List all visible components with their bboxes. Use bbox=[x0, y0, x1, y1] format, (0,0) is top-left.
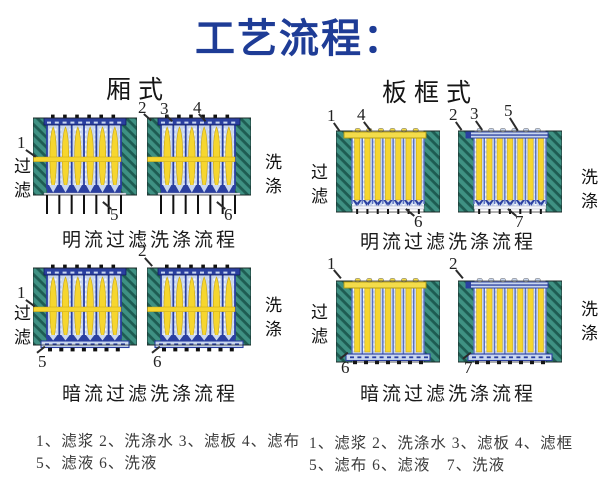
legend-line: 5、滤液 6、洗液 bbox=[36, 451, 157, 473]
washing-side-label: 洗涤 bbox=[575, 168, 600, 216]
filtration-side-label: 过滤 bbox=[8, 157, 33, 205]
callout-number: 6 bbox=[341, 359, 350, 376]
filtration-side-label: 过滤 bbox=[305, 303, 330, 351]
process-flow-figure: 工艺流程： 厢式 板框式 过滤 洗涤 过滤 洗涤 过滤 洗涤 过滤 洗涤 1 2… bbox=[0, 0, 600, 496]
legend-line: 1、滤浆 2、洗涤水 3、滤板 4、滤布 bbox=[36, 429, 300, 451]
caption-closed-flow: 暗流过滤洗涤流程 bbox=[330, 379, 566, 406]
legend-line: 5、滤布 6、滤液 7、洗液 bbox=[309, 453, 505, 475]
washing-side-label: 洗涤 bbox=[575, 300, 600, 348]
frame-closed-flow-washing-diagram bbox=[458, 272, 562, 380]
callout-number: 5 bbox=[504, 102, 513, 119]
legend-line: 1、滤浆 2、洗涤水 3、滤板 4、滤框 bbox=[309, 431, 573, 453]
chamber-closed-flow-washing-diagram bbox=[147, 262, 251, 370]
callout-number: 5 bbox=[38, 353, 47, 370]
caption-open-flow: 明流过滤洗涤流程 bbox=[330, 227, 566, 254]
filtration-side-label: 过滤 bbox=[305, 163, 330, 211]
callout-number: 6 bbox=[153, 353, 162, 370]
chamber-open-flow-washing-diagram bbox=[147, 112, 251, 220]
callout-number: 1 bbox=[17, 284, 26, 301]
washing-side-label: 洗涤 bbox=[259, 296, 284, 344]
chamber-closed-flow-filtration-diagram bbox=[33, 262, 137, 370]
frame-open-flow-filtration-diagram bbox=[336, 122, 440, 230]
page-title: 工艺流程： bbox=[0, 6, 600, 64]
callout-number: 3 bbox=[470, 105, 479, 122]
caption-closed-flow: 暗流过滤洗涤流程 bbox=[28, 379, 272, 406]
washing-side-label: 洗涤 bbox=[259, 153, 284, 201]
chamber-open-flow-filtration-diagram bbox=[33, 112, 137, 220]
filtration-side-label: 过滤 bbox=[8, 304, 33, 352]
caption-open-flow: 明流过滤洗涤流程 bbox=[28, 225, 272, 252]
callout-number: 1 bbox=[17, 134, 26, 151]
frame-open-flow-washing-diagram bbox=[458, 122, 562, 230]
section-header-plate-frame: 板框式 bbox=[382, 73, 478, 109]
callout-number: 7 bbox=[464, 359, 473, 376]
frame-closed-flow-filtration-diagram bbox=[336, 272, 440, 380]
